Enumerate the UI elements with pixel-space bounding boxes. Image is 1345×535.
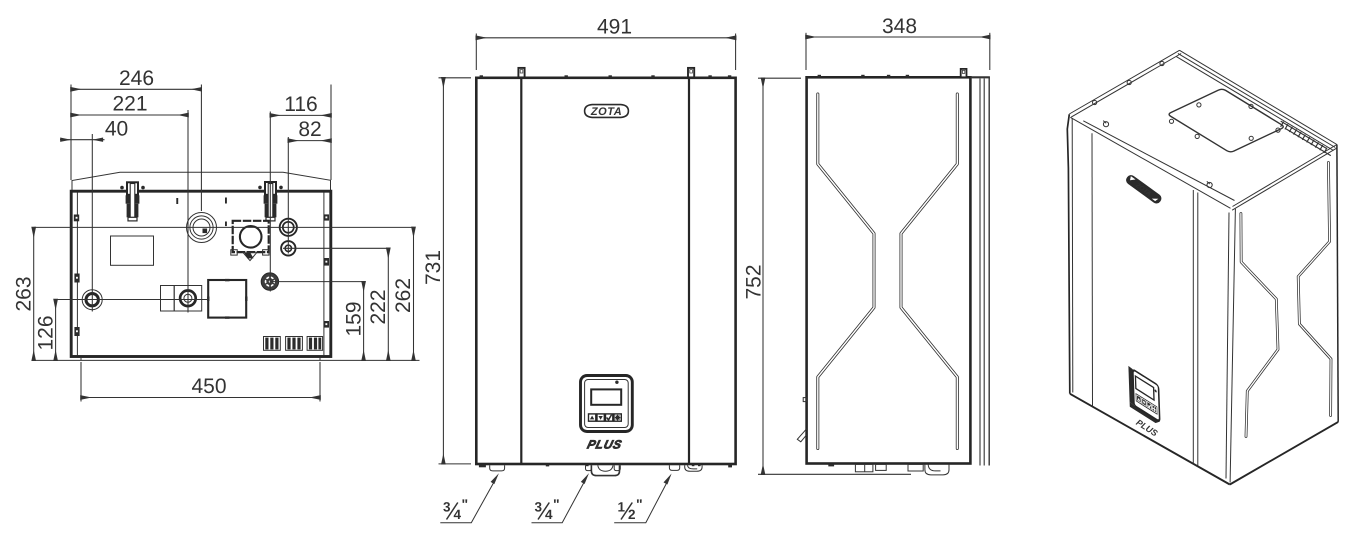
svg-text:PLUS: PLUS — [586, 438, 624, 452]
svg-text:450: 450 — [191, 375, 226, 398]
svg-text:1: 1 — [618, 500, 626, 515]
svg-text:221: 221 — [112, 93, 147, 116]
svg-text:": " — [636, 496, 643, 512]
svg-text:126: 126 — [34, 315, 57, 350]
svg-text:3: 3 — [443, 500, 451, 515]
svg-text:40: 40 — [105, 117, 128, 140]
svg-text:159: 159 — [342, 301, 365, 336]
svg-text:262: 262 — [392, 278, 415, 313]
svg-text:116: 116 — [284, 93, 317, 116]
svg-text:4: 4 — [545, 507, 553, 522]
svg-text:491: 491 — [597, 15, 632, 38]
svg-text:752: 752 — [742, 264, 765, 299]
svg-text:3: 3 — [535, 500, 543, 515]
svg-text:246: 246 — [119, 67, 154, 90]
svg-text:": " — [553, 496, 560, 512]
svg-text:": " — [462, 496, 469, 512]
svg-text:82: 82 — [298, 118, 321, 141]
svg-text:348: 348 — [882, 15, 917, 38]
svg-text:263: 263 — [13, 276, 36, 311]
svg-text:ZOTA: ZOTA — [590, 106, 623, 118]
svg-text:731: 731 — [422, 250, 445, 285]
svg-text:2: 2 — [628, 507, 636, 522]
svg-text:222: 222 — [367, 289, 390, 324]
svg-text:4: 4 — [454, 507, 462, 522]
